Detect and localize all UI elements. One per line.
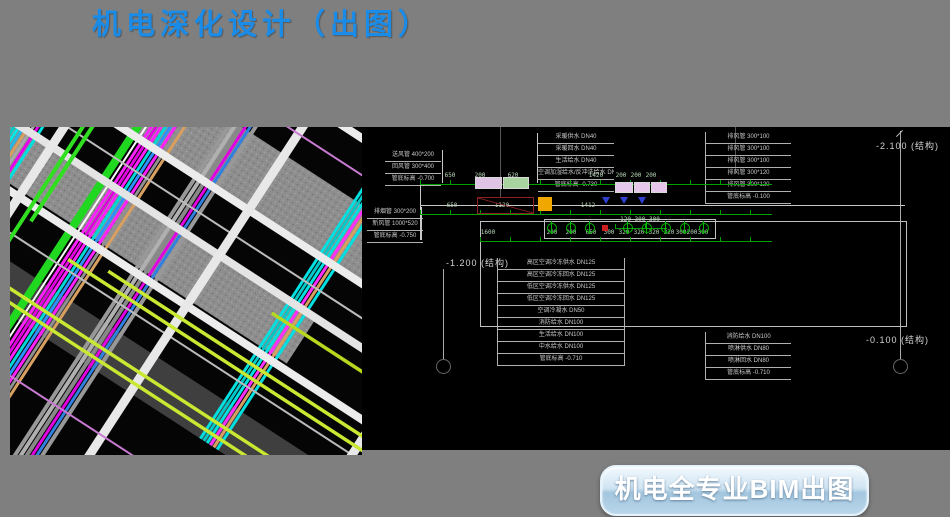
- valve-icon: [623, 223, 633, 233]
- cad-label: 管底标高 -0.710: [497, 354, 625, 366]
- equipment-box: [651, 182, 667, 193]
- dimension-label: 200: [631, 173, 642, 179]
- bim-output-button[interactable]: 机电全专业BIM出图: [600, 465, 869, 516]
- elevation-label: -0.100 (结构): [866, 333, 929, 346]
- cad-label: 回风管 300*400: [385, 162, 441, 174]
- valve-icon: [585, 223, 595, 233]
- valve-marker-red: [602, 225, 608, 231]
- bim-3d-view: [10, 127, 362, 455]
- dimension-label: 1412: [581, 203, 595, 209]
- cad-label: 中水给水 DN100: [497, 342, 625, 354]
- cad-label: 生活给水 DN40: [538, 156, 614, 168]
- cad-label: 管底标高 -0.750: [367, 231, 423, 243]
- cad-label: 采暖供水 DN40: [538, 132, 614, 144]
- dim-line: [420, 180, 772, 185]
- grid-bubble: [436, 359, 451, 374]
- dimension-label: 1420: [589, 173, 603, 179]
- equipment-box: [503, 177, 529, 189]
- bim-3d-pipes-graphic: [10, 127, 362, 455]
- cad-label: 喷淋回水 DN80: [705, 356, 791, 368]
- valve-icon: [699, 223, 709, 233]
- duct-outline-red: [477, 197, 534, 214]
- valve-icon: [680, 223, 690, 233]
- slide: 机电深化设计（出图）: [0, 0, 950, 517]
- cad-label-stack-mid-left: 排烟管 300*200新风管 1000*520管底标高 -0.750: [367, 207, 423, 243]
- cad-label: 采暖回水 DN40: [538, 144, 614, 156]
- cad-label: 管底标高 -0.100: [705, 192, 791, 204]
- damper-orange: [538, 197, 552, 211]
- elevation-label: -2.100 (结构): [876, 139, 939, 152]
- equipment-box: [615, 182, 633, 193]
- cad-label: 排风管 300*100: [705, 144, 791, 156]
- dimension-label: 1600: [481, 230, 495, 236]
- cad-label: 管底标高 -0.710: [705, 368, 791, 380]
- cad-label: 消防给水 DN100: [705, 332, 791, 344]
- cad-label: 送风管 400*200: [385, 150, 441, 162]
- cad-label: 生活给水 DN100: [497, 330, 625, 342]
- dim-line: [420, 210, 772, 215]
- valve-icon: [566, 223, 576, 233]
- cad-drawing: -2.100 (结构) -1.200 (结构) -0.100 (结构) 送风管 …: [362, 127, 950, 450]
- cad-label-stack-bottom-mid: 消防给水 DN100喷淋供水 DN80喷淋回水 DN80管底标高 -0.710: [705, 332, 791, 380]
- valve-icon: [642, 223, 652, 233]
- cad-label: 喷淋供水 DN80: [705, 344, 791, 356]
- arrow-down-icon: [638, 197, 646, 204]
- dim-line: [480, 237, 772, 242]
- cad-label: 排风管 300*120: [705, 168, 791, 180]
- leader-line: [537, 133, 538, 183]
- cad-label: 排烟管 300*200: [367, 207, 423, 219]
- dimension-label: 200: [616, 173, 627, 179]
- cad-label: 排风管 300*100: [705, 132, 791, 144]
- cad-label: 排风管 300*100: [705, 156, 791, 168]
- valve-icon: [661, 223, 671, 233]
- cad-label: 新风管 1000*520: [367, 219, 423, 231]
- cad-label-stack-top-right: 排风管 300*100排风管 300*100排风管 300*100排风管 300…: [705, 132, 791, 204]
- leader-line: [442, 150, 443, 183]
- valve-icon: [547, 223, 557, 233]
- grid-line: [443, 269, 444, 359]
- arrow-down-icon: [620, 197, 628, 204]
- dimension-label: 650: [447, 203, 458, 209]
- equipment-box: [634, 182, 650, 193]
- dimension-label: 650: [445, 173, 456, 179]
- grid-bubble: [893, 359, 908, 374]
- page-title: 机电深化设计（出图）: [92, 1, 432, 43]
- equipment-box: [475, 177, 502, 189]
- arrow-down-icon: [602, 197, 610, 204]
- dimension-label: 200: [646, 173, 657, 179]
